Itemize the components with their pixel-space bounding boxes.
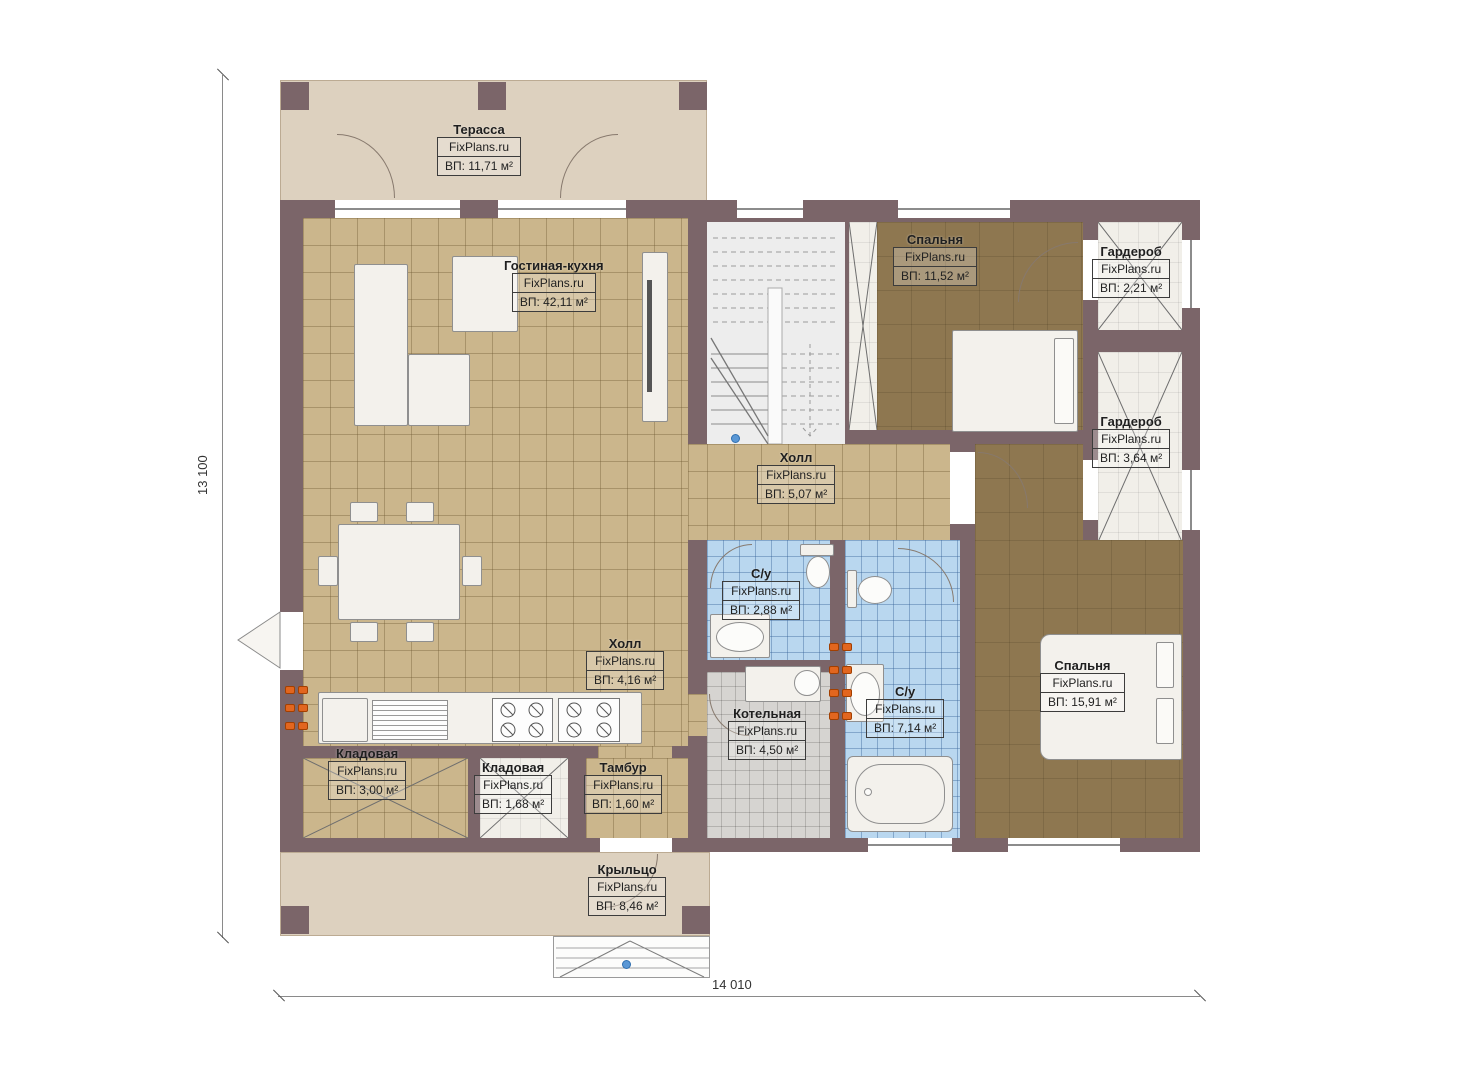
room-area: ВП: 3,00 м² <box>329 781 405 799</box>
room-name: Кладовая <box>336 746 398 761</box>
room-name: Гостиная-кухня <box>504 258 604 273</box>
room-area: ВП: 11,71 м² <box>438 157 520 175</box>
room-label-boiler: Котельная FixPlans.ru ВП: 4,50 м² <box>728 706 806 760</box>
dining-table <box>338 524 460 620</box>
bathtub-drain <box>864 788 872 796</box>
door-opening <box>950 452 975 524</box>
room-area: ВП: 4,16 м² <box>587 671 663 689</box>
terrace-door-opening <box>335 200 460 218</box>
room-area: ВП: 7,14 м² <box>867 719 943 737</box>
chair <box>350 622 378 642</box>
terrace-post <box>478 82 506 110</box>
dimension-label-height: 13 100 <box>195 455 210 495</box>
doorway <box>688 444 707 540</box>
brand-watermark: FixPlans.ru <box>585 776 661 795</box>
terrace-door-opening <box>498 200 626 218</box>
brand-watermark: FixPlans.ru <box>1041 674 1124 693</box>
room-name: Крыльцо <box>598 862 657 877</box>
brand-watermark: FixPlans.ru <box>729 722 805 741</box>
brand-watermark: FixPlans.ru <box>329 762 405 781</box>
room-label-hall-lower: Холл FixPlans.ru ВП: 4,16 м² <box>586 636 664 690</box>
room-area: ВП: 1,60 м² <box>585 795 661 813</box>
window <box>898 200 1010 218</box>
chair <box>462 556 482 586</box>
tv-screen <box>647 280 652 392</box>
brand-watermark: FixPlans.ru <box>589 878 665 897</box>
room-label-tambour: Тамбур FixPlans.ru ВП: 1,60 м² <box>584 760 662 814</box>
room-name: Тамбур <box>600 760 647 775</box>
room-label-storage1: Кладовая FixPlans.ru ВП: 3,00 м² <box>328 746 406 800</box>
room-label-storage2: Кладовая FixPlans.ru ВП: 1,68 м² <box>474 760 552 814</box>
room-label-terrace: Терасса FixPlans.ru ВП: 11,71 м² <box>437 122 521 176</box>
brand-watermark: FixPlans.ru <box>438 138 520 157</box>
radiator-icon <box>829 712 852 720</box>
room-name: Гардероб <box>1100 414 1161 429</box>
room-name: С/у <box>895 684 915 699</box>
kitchen-appliance <box>322 698 368 742</box>
room-area: ВП: 2,21 м² <box>1093 279 1169 297</box>
utility-marker <box>622 960 631 969</box>
room-name: С/у <box>751 566 771 581</box>
room-label-living: Гостиная-кухня FixPlans.ru ВП: 42,11 м² <box>504 258 604 312</box>
tv-unit <box>642 252 668 422</box>
room-name: Котельная <box>733 706 801 721</box>
terrace-post <box>679 82 707 110</box>
dimension-label-width: 14 010 <box>712 977 752 992</box>
dimension-tick <box>217 68 229 80</box>
brand-watermark: FixPlans.ru <box>1093 260 1169 279</box>
room-name: Спальня <box>907 232 963 247</box>
window <box>1182 240 1200 308</box>
brand-watermark: FixPlans.ru <box>475 776 551 795</box>
window <box>737 200 803 218</box>
entry-door-opening <box>600 838 672 852</box>
door-opening <box>1083 460 1098 520</box>
staircase-icon <box>707 222 845 444</box>
room-area: ВП: 8,46 м² <box>589 897 665 915</box>
brand-watermark: FixPlans.ru <box>867 700 943 719</box>
toilet-bowl <box>806 556 830 588</box>
stove <box>492 698 620 742</box>
dimension-line-horizontal <box>278 996 1200 997</box>
doorway <box>598 746 672 758</box>
doorway <box>688 694 707 736</box>
toilet-bowl <box>858 576 892 604</box>
room-area: ВП: 1,68 м² <box>475 795 551 813</box>
porch-post <box>682 906 710 934</box>
terrace-post <box>281 82 309 110</box>
room-label-hall-upper: Холл FixPlans.ru ВП: 5,07 м² <box>757 450 835 504</box>
window <box>1182 470 1200 530</box>
brand-watermark: FixPlans.ru <box>1093 430 1169 449</box>
room-name: Терасса <box>453 122 505 137</box>
porch-post <box>281 906 309 934</box>
chair <box>350 502 378 522</box>
staircase-area <box>707 222 845 444</box>
room-name: Холл <box>780 450 813 465</box>
brand-watermark: FixPlans.ru <box>894 248 976 267</box>
toilet-tank <box>800 544 834 556</box>
steps-icon <box>554 937 711 979</box>
room-area: ВП: 15,91 м² <box>1041 693 1124 711</box>
room-label-wardrobe1: Гардероб FixPlans.ru ВП: 2,21 м² <box>1092 244 1170 298</box>
bed-pillow <box>1054 338 1074 424</box>
room-label-bath-small: С/у FixPlans.ru ВП: 2,88 м² <box>722 566 800 620</box>
room-name: Гардероб <box>1100 244 1161 259</box>
room-area: ВП: 11,52 м² <box>894 267 976 285</box>
room-area: ВП: 2,88 м² <box>723 601 799 619</box>
brand-watermark: FixPlans.ru <box>723 582 799 601</box>
room-label-porch: Крыльцо FixPlans.ru ВП: 8,46 м² <box>588 862 666 916</box>
brand-watermark: FixPlans.ru <box>587 652 663 671</box>
sink-basin <box>716 622 764 652</box>
room-label-wardrobe2: Гардероб FixPlans.ru ВП: 3,64 м² <box>1092 414 1170 468</box>
radiator-icon <box>285 722 308 730</box>
radiator-icon <box>285 704 308 712</box>
radiator-icon <box>829 689 852 697</box>
radiator-icon <box>829 666 852 674</box>
floor-plan: Терасса FixPlans.ru ВП: 11,71 м² Гостина… <box>0 0 1474 1080</box>
radiator-icon <box>285 686 308 694</box>
entrance-door-leaf <box>236 610 282 670</box>
utility-marker <box>731 434 740 443</box>
bed-pillow <box>1156 642 1174 688</box>
stove-burners-icon <box>492 698 620 742</box>
room-area: ВП: 4,50 м² <box>729 741 805 759</box>
room-label-bedroom2: Спальня FixPlans.ru ВП: 15,91 м² <box>1040 658 1125 712</box>
window <box>1008 838 1120 852</box>
chair <box>406 622 434 642</box>
side-door-opening <box>280 612 303 670</box>
brand-watermark: FixPlans.ru <box>758 466 834 485</box>
window <box>868 838 952 852</box>
room-label-bedroom1: Спальня FixPlans.ru ВП: 11,52 м² <box>893 232 977 286</box>
room-area: ВП: 42,11 м² <box>513 293 595 311</box>
toilet-tank <box>847 570 857 608</box>
sofa-chaise <box>408 354 470 426</box>
radiator-icon <box>829 643 852 651</box>
porch-steps <box>553 936 710 978</box>
chair <box>318 556 338 586</box>
room-label-bath-big: С/у FixPlans.ru ВП: 7,14 м² <box>866 684 944 738</box>
room-area: ВП: 5,07 м² <box>758 485 834 503</box>
dimension-line-vertical <box>222 75 223 938</box>
room-name: Кладовая <box>482 760 544 775</box>
bed-pillow <box>1156 698 1174 744</box>
sofa <box>354 264 408 426</box>
brand-watermark: FixPlans.ru <box>513 274 595 293</box>
dish-rack <box>372 700 448 740</box>
chair <box>406 502 434 522</box>
stair-closet <box>849 222 877 430</box>
boiler-flue <box>794 670 820 696</box>
room-name: Спальня <box>1054 658 1110 673</box>
dimension-tick <box>217 931 229 943</box>
room-name: Холл <box>609 636 642 651</box>
room-area: ВП: 3,64 м² <box>1093 449 1169 467</box>
shelving-x-icon <box>849 222 877 430</box>
